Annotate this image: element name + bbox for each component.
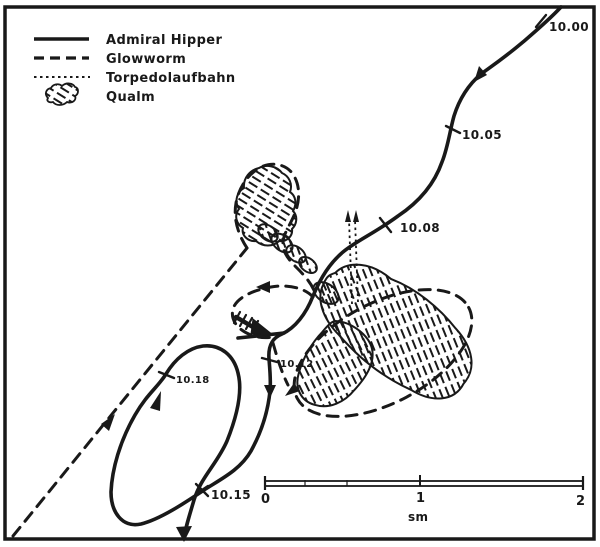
scale-bar-body — [265, 481, 583, 486]
legend-label-torpedolaufbahn: Torpedolaufbahn — [106, 71, 236, 86]
legend-label-admiral-hipper: Admiral Hipper — [106, 33, 222, 48]
scale-label-0: 0 — [261, 492, 270, 507]
scale-unit-label: sm — [408, 510, 428, 524]
map-frame — [5, 7, 594, 539]
legend-label-glowworm: Glowworm — [106, 52, 186, 67]
time-label-1005: 10.05 — [462, 128, 502, 142]
time-label-1000: 10.00 — [549, 20, 589, 34]
track-chart: 10.00 10.05 10.08 10.12 10.15 10.18 Admi… — [0, 0, 600, 547]
time-label-1018: 10.18 — [176, 375, 210, 386]
chart-canvas: 10.00 10.05 10.08 10.12 10.15 10.18 Admi… — [0, 0, 600, 547]
time-label-1015: 10.15 — [211, 488, 251, 502]
scale-label-2: 2 — [576, 494, 585, 509]
time-label-1008: 10.08 — [400, 221, 440, 235]
time-label-1012: 10.12 — [280, 359, 314, 370]
scale-label-1: 1 — [416, 491, 425, 506]
legend-label-qualm: Qualm — [106, 90, 155, 105]
